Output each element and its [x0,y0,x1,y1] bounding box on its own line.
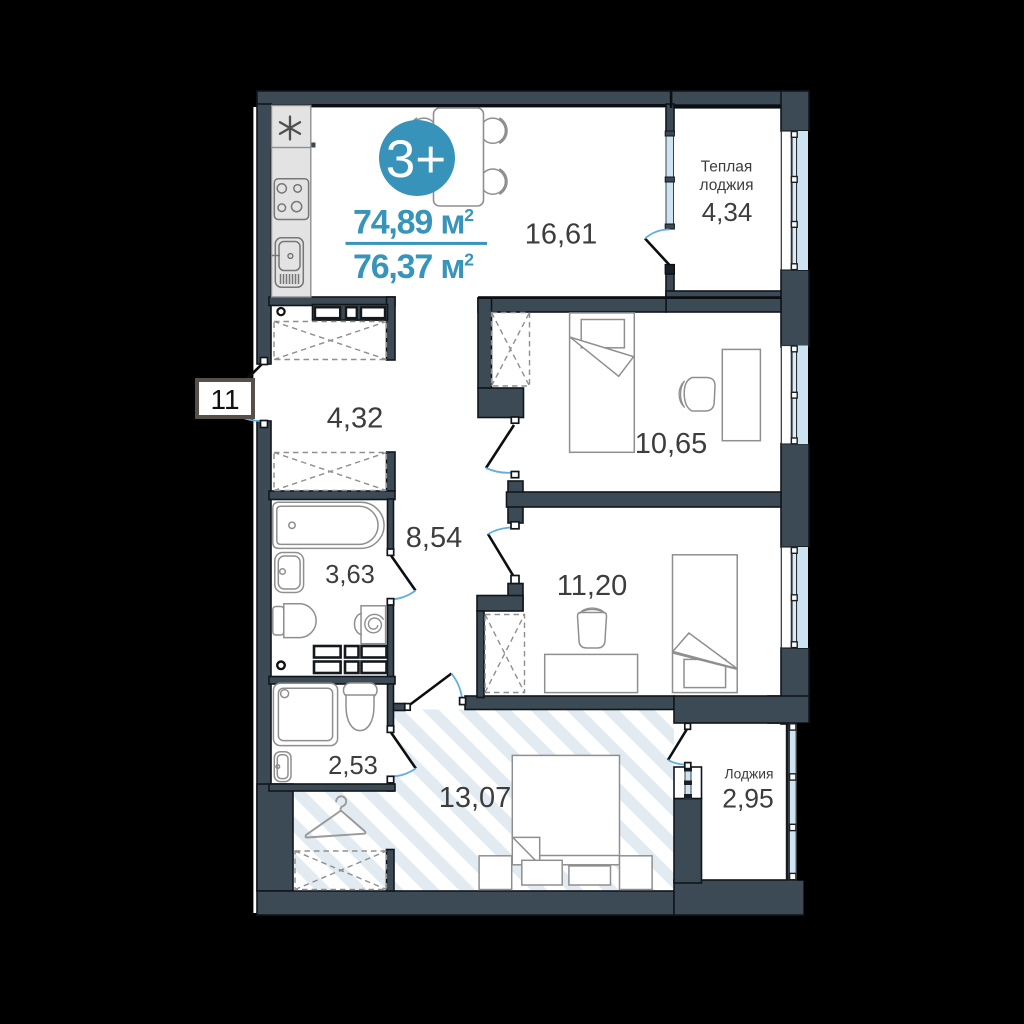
svg-text:13,07: 13,07 [439,782,512,814]
svg-text:Лоджия: Лоджия [725,767,774,782]
svg-text:3,63: 3,63 [325,561,375,589]
svg-text:3+: 3+ [386,130,446,189]
svg-text:16,61: 16,61 [525,219,598,251]
svg-text:11: 11 [210,384,239,415]
svg-text:2,53: 2,53 [328,752,378,780]
svg-text:76,37 м2: 76,37 м2 [353,248,474,286]
svg-text:10,65: 10,65 [635,428,708,460]
svg-text:2,95: 2,95 [722,784,774,814]
svg-text:8,54: 8,54 [406,522,462,554]
svg-text:74,89 м2: 74,89 м2 [353,204,474,242]
svg-text:11,20: 11,20 [557,570,627,602]
svg-text:лоджия: лоджия [700,177,754,194]
svg-text:4,34: 4,34 [702,197,753,227]
svg-text:Теплая: Теплая [701,159,753,176]
svg-text:4,32: 4,32 [327,403,383,435]
